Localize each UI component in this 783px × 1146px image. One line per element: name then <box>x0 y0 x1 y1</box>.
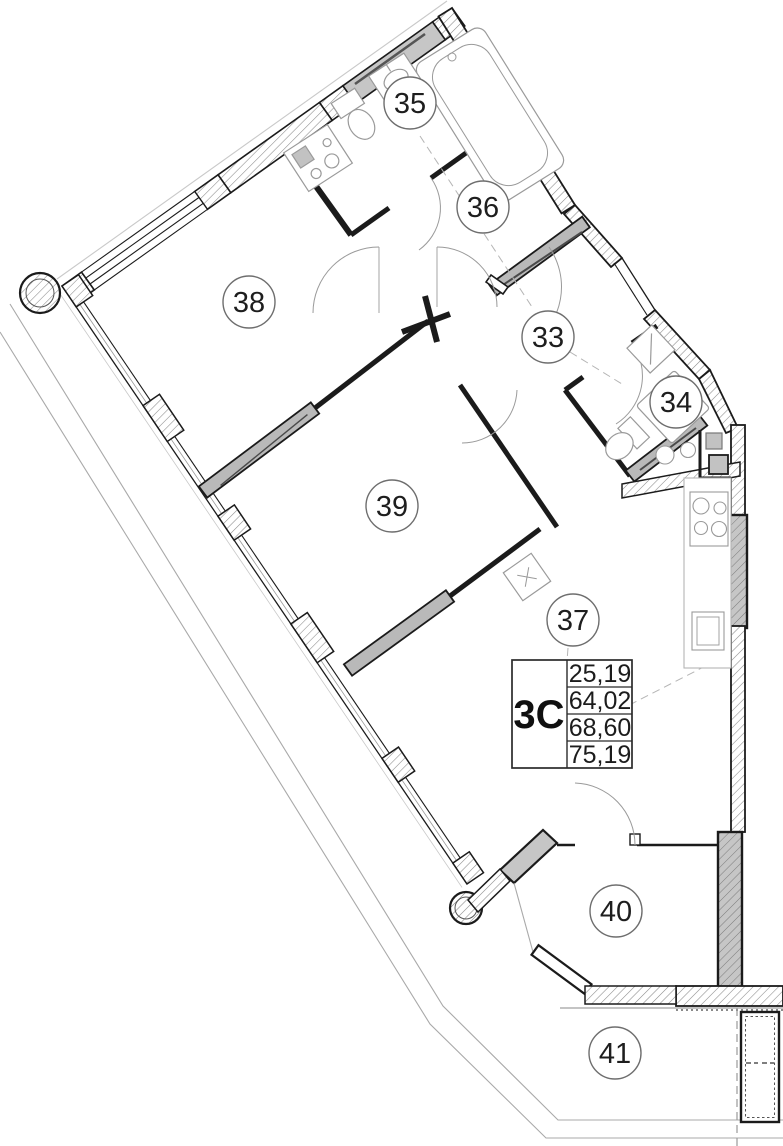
svg-text:39: 39 <box>376 491 408 523</box>
svg-text:40: 40 <box>600 896 632 928</box>
svg-text:38: 38 <box>233 287 265 319</box>
area-value-row: 75,19 <box>569 741 632 769</box>
site-boundary-lines <box>0 1 783 1138</box>
room-badge-36: 36 <box>457 181 509 233</box>
svg-text:41: 41 <box>599 1038 631 1070</box>
door-arc-icon <box>575 783 635 845</box>
bathtub-icon <box>413 24 568 205</box>
door-arc-icon <box>419 178 440 250</box>
wall-section-detail <box>741 1012 779 1122</box>
area-value-row: 68,60 <box>569 714 632 742</box>
unit-type-label: 3C <box>513 693 564 737</box>
wall-piers <box>62 275 484 884</box>
appliance-icon <box>692 612 724 650</box>
svg-text:36: 36 <box>467 192 499 224</box>
room-badge-33: 33 <box>522 311 574 363</box>
vent-shaft-icon <box>503 553 550 600</box>
room-41-boundary <box>560 1008 783 1146</box>
door-arc-icon <box>313 247 379 313</box>
door-arc-icon <box>437 247 497 307</box>
room-badges: 35 36 38 33 34 39 37 40 <box>223 77 702 1079</box>
partition-band <box>199 402 319 497</box>
room-badge-40: 40 <box>590 885 642 937</box>
svg-text:37: 37 <box>557 605 589 637</box>
room-badge-41: 41 <box>589 1027 641 1079</box>
window-strip <box>82 192 208 291</box>
area-value-row: 64,02 <box>569 687 632 715</box>
exterior-wall-left <box>20 273 484 924</box>
room-badge-35: 35 <box>384 77 436 129</box>
room-badge-37: 37 <box>547 594 599 646</box>
room-badge-38: 38 <box>223 276 275 328</box>
area-value-row: 25,19 <box>569 660 632 688</box>
svg-text:33: 33 <box>532 322 564 354</box>
room-badge-34: 34 <box>650 376 702 428</box>
svg-text:35: 35 <box>394 88 426 120</box>
exterior-wall-top-left <box>62 8 465 304</box>
partition-band <box>344 590 454 675</box>
floor-plan-page: 3C 25,19 64,02 68,60 75,19 35 36 38 33 3… <box>0 0 783 1146</box>
room-badge-39: 39 <box>366 480 418 532</box>
area-table: 3C 25,19 64,02 68,60 75,19 <box>512 660 632 769</box>
svg-text:34: 34 <box>660 387 692 419</box>
floor-plan-drawing: 3C 25,19 64,02 68,60 75,19 35 36 38 33 3… <box>0 0 783 1146</box>
